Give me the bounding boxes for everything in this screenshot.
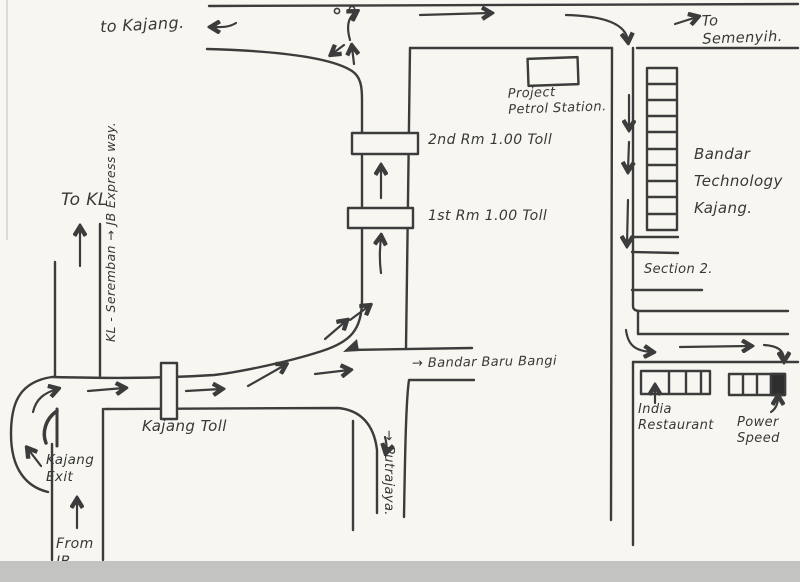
- arrow-power-pointer: [771, 397, 778, 412]
- arrow-bottom-east: [680, 346, 750, 347]
- road-main-bottom-edge: [105, 408, 377, 513]
- bandar-tech-building: [647, 68, 677, 230]
- arrow-toll-top-left: [332, 45, 344, 54]
- hand-drawn-map: to Kajang. To Semenyih. Project Petrol S…: [0, 0, 800, 582]
- toll-booth-2nd: [352, 133, 418, 154]
- arrow-loop-uturn: [33, 389, 57, 412]
- arrow-to-semenyih: [675, 17, 697, 24]
- toll-booth-1st: [348, 208, 413, 228]
- arrow-toll-top-curve: [348, 12, 356, 40]
- junction-dot: [349, 6, 354, 11]
- arrow-main-road-2: [186, 389, 221, 391]
- arrow-to-kajang-left: [212, 23, 236, 27]
- road-east-left-edge: [611, 48, 612, 520]
- power-speed-filled-unit: [771, 374, 785, 395]
- arrow-junction-merge-2: [325, 321, 346, 339]
- map-drawing: [0, 0, 800, 582]
- road-top-north-line: [209, 4, 798, 6]
- scanner-band: [0, 561, 800, 582]
- road-bandar-baru-top: [348, 348, 472, 350]
- arrow-kajang-exit-pointer: [28, 449, 41, 466]
- road-network: [11, 4, 798, 560]
- toll-booth-kajang: [161, 363, 177, 419]
- arrow-top-road-east: [420, 13, 490, 15]
- arrow-putrajaya-down: [385, 437, 387, 452]
- arrow-turn-down-east-road: [566, 15, 628, 41]
- arrow-main-road-1: [88, 388, 124, 391]
- arrow-toll-top-up: [352, 47, 354, 64]
- structures: [161, 6, 785, 419]
- road-toll-left-edge-and-main-top: [11, 49, 362, 492]
- arrow-toll-road-up-1: [380, 237, 381, 273]
- power-speed-building: [729, 374, 785, 395]
- road-bandar-baru-bottom-and-putrajaya-right: [404, 380, 474, 517]
- arrow-main-road-3: [315, 370, 349, 374]
- petrol-station-box: [528, 57, 579, 86]
- section2-tick-2: [632, 252, 678, 253]
- road-east-right-edge-and-branch: [633, 48, 788, 311]
- arrow-curve-to-power-speed: [764, 345, 784, 360]
- arrow-east-road-down-3: [627, 200, 628, 244]
- junction-dot: [334, 8, 339, 13]
- arrow-east-road-down-2: [628, 142, 629, 170]
- scan-edge-line: [6, 0, 8, 240]
- india-restaurant-building: [641, 371, 710, 394]
- loop-inner-crescent: [44, 411, 57, 443]
- road-toll-right-edge: [406, 48, 410, 348]
